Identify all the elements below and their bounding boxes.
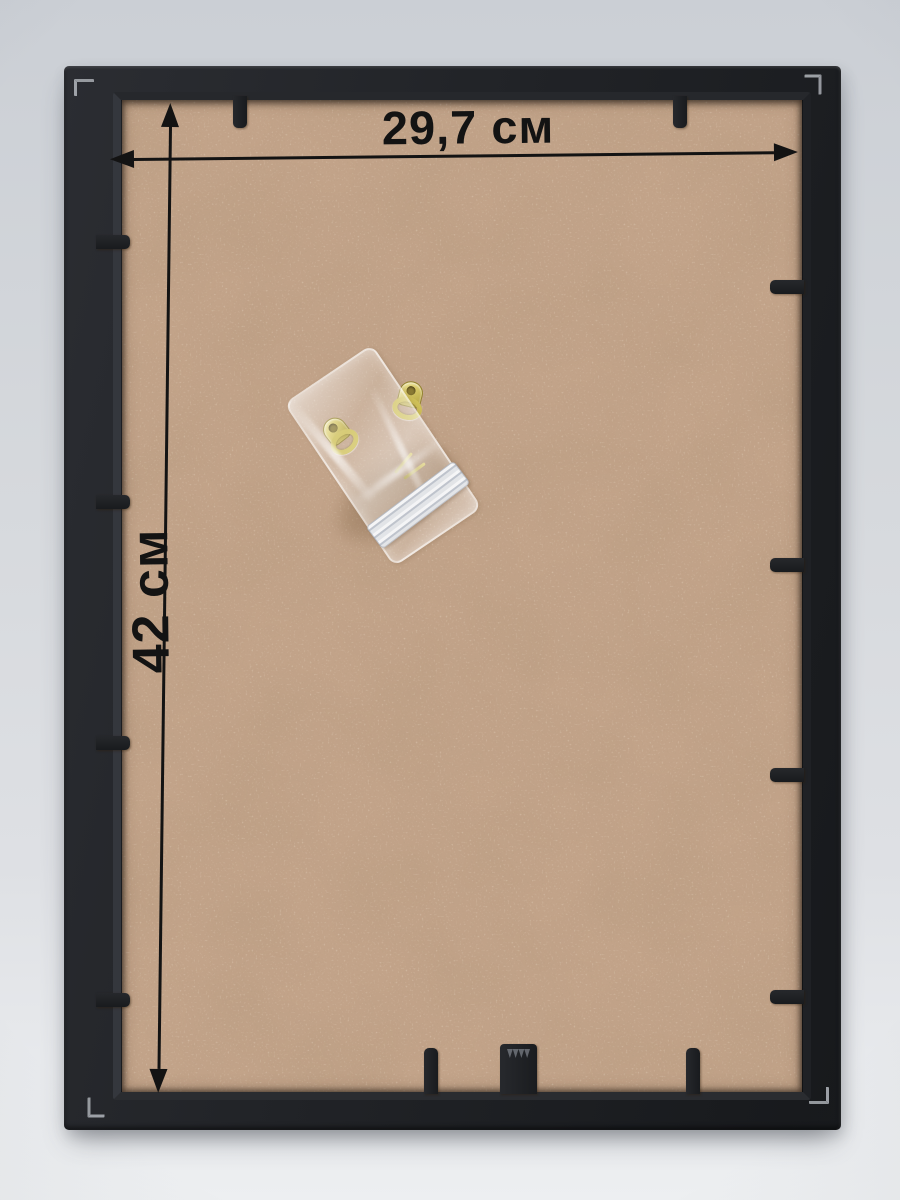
retainer-clip (96, 736, 130, 750)
height-dimension-label: 42 см (120, 528, 182, 673)
retainer-clip (96, 495, 130, 509)
arrow-left-icon (110, 150, 134, 168)
retainer-clip (424, 1048, 438, 1094)
retainer-clip (686, 1048, 700, 1094)
retainer-clip (233, 96, 247, 128)
arrow-right-icon (774, 143, 798, 161)
retainer-clip (770, 558, 804, 572)
retainer-clip (96, 993, 130, 1007)
retainer-clip (96, 235, 130, 249)
arrow-down-icon (149, 1069, 167, 1093)
sawtooth-teeth-icon (507, 1049, 530, 1058)
sawtooth-hanger (500, 1044, 537, 1094)
product-photo: 29,7 см 42 см (0, 0, 900, 1200)
retainer-clip (770, 768, 804, 782)
retainer-clip (770, 990, 804, 1004)
arrow-up-icon (161, 103, 179, 127)
width-dimension-label: 29,7 см (381, 99, 554, 156)
retainer-clip (673, 96, 687, 128)
retainer-clip (770, 280, 804, 294)
